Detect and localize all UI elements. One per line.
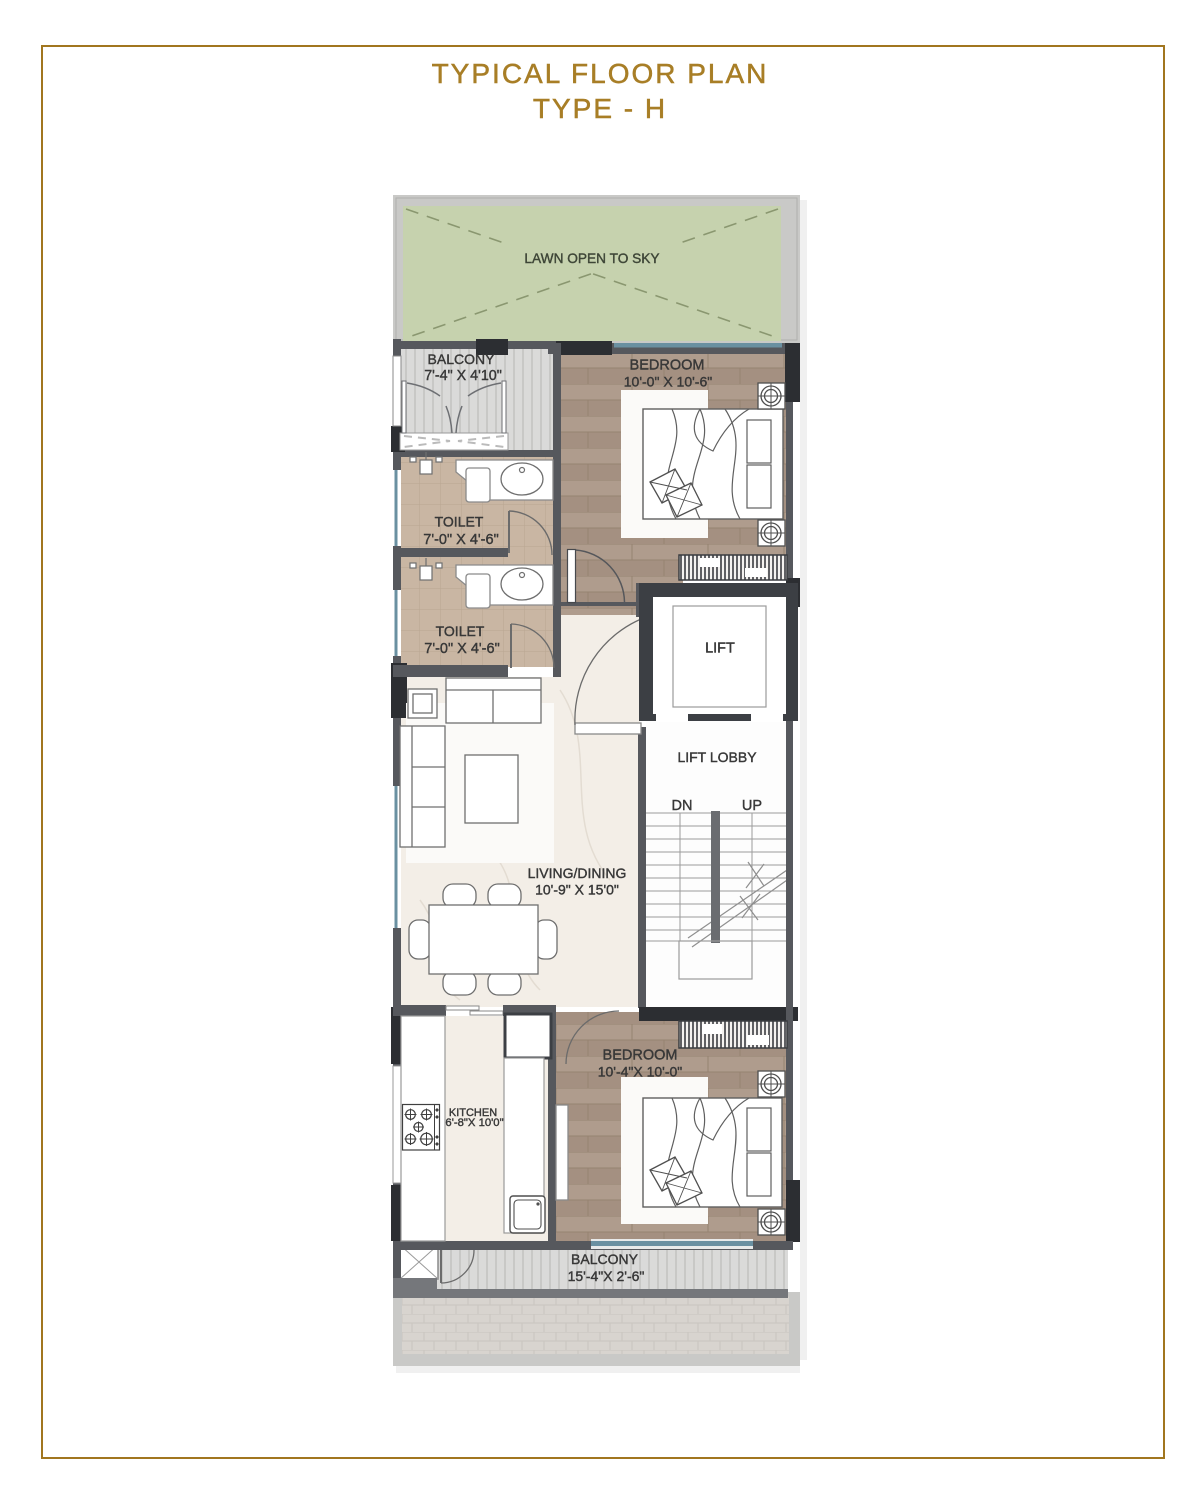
svg-text:7'-0" X 4'-6": 7'-0" X 4'-6" <box>423 532 498 548</box>
svg-text:TOILET: TOILET <box>436 623 485 639</box>
svg-text:LIVING/DINING: LIVING/DINING <box>528 865 627 881</box>
svg-text:BEDROOM: BEDROOM <box>603 1048 678 1064</box>
svg-text:LIFT: LIFT <box>705 641 735 657</box>
svg-text:BALCONY: BALCONY <box>571 1251 639 1267</box>
svg-text:7'-4" X 4'10": 7'-4" X 4'10" <box>424 368 502 384</box>
svg-text:LAWN OPEN TO SKY: LAWN OPEN TO SKY <box>524 251 659 266</box>
svg-text:DN: DN <box>672 798 693 814</box>
svg-text:LIFT LOBBY: LIFT LOBBY <box>677 749 757 765</box>
svg-text:TOILET: TOILET <box>435 514 484 530</box>
svg-text:10'-9" X 15'0": 10'-9" X 15'0" <box>535 882 619 898</box>
svg-text:BALCONY: BALCONY <box>428 351 496 367</box>
svg-text:15'-4"X 2'-6": 15'-4"X 2'-6" <box>568 1268 645 1284</box>
svg-text:UP: UP <box>742 798 762 814</box>
svg-text:6'-8"X 10'0": 6'-8"X 10'0" <box>445 1117 503 1129</box>
svg-text:7'-0" X 4'-6": 7'-0" X 4'-6" <box>424 641 499 657</box>
svg-text:BEDROOM: BEDROOM <box>630 358 705 374</box>
svg-text:10'-4"X 10'-0": 10'-4"X 10'-0" <box>598 1064 683 1080</box>
svg-text:10'-0" X 10'-6": 10'-0" X 10'-6" <box>624 374 712 390</box>
